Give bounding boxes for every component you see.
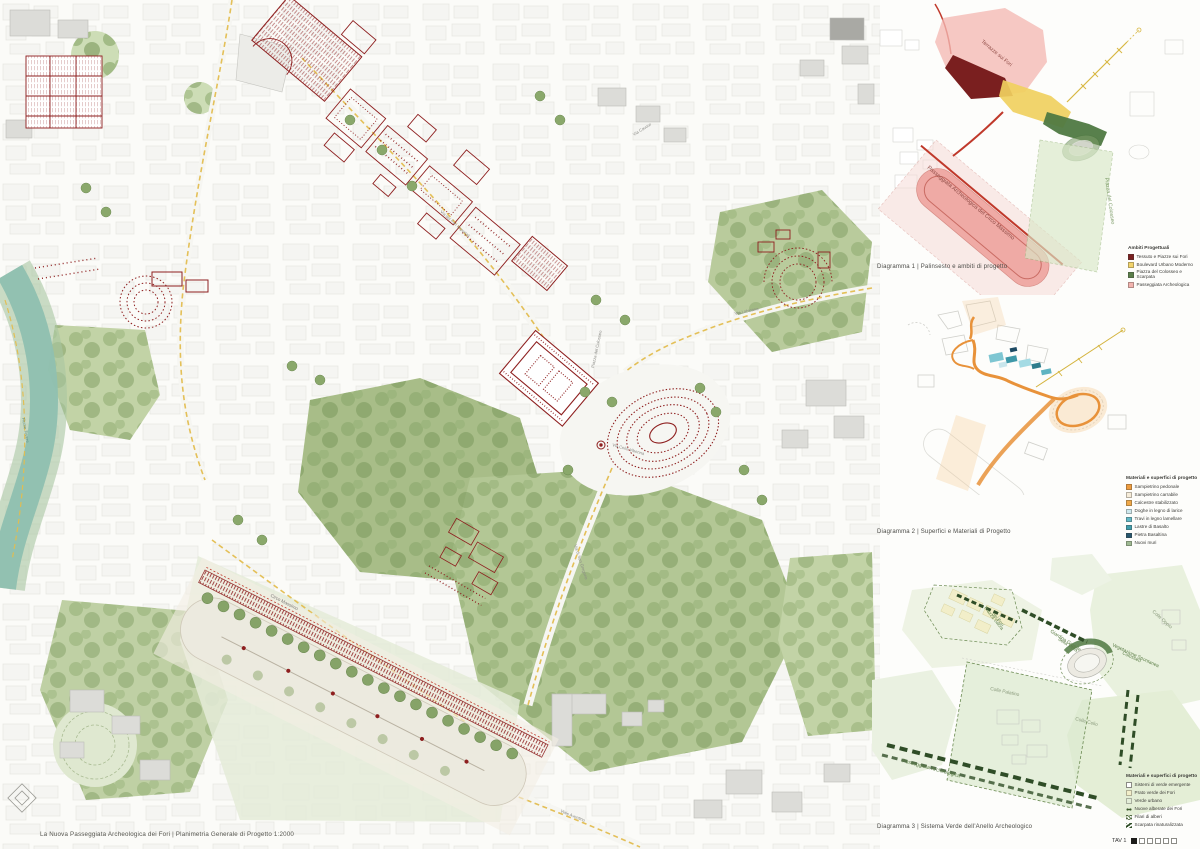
diagram1-legend: Ambiti Progettuali Tessuto e Piazze sui …: [1128, 247, 1198, 290]
board-title-caption: La Nuova Passeggiata Archeologica dei Fo…: [40, 831, 294, 838]
legend-swatch: [1126, 509, 1132, 515]
legend-swatch: [1126, 541, 1132, 547]
dashed-swatch-icon: [1126, 782, 1132, 788]
legend-label: Sistemi di verde emergente: [1135, 783, 1191, 788]
legend-label: Calcestre stabilizzato: [1135, 501, 1178, 506]
sheet-square: [1147, 838, 1153, 844]
legend-label: Nuove alberate dei Fori: [1135, 807, 1183, 812]
legend-label: Nuovi muri: [1135, 541, 1157, 546]
legend-item: Piazza del Colosseo e Scarpata: [1128, 270, 1198, 279]
legend-swatch: [1128, 254, 1134, 260]
diagram1-red-route: [953, 112, 1003, 156]
presentation-board: Circo Massimo: [0, 0, 1200, 849]
masterplan-map: Circo Massimo: [0, 0, 880, 849]
legend-label: Passeggiata Archeologica: [1137, 283, 1190, 288]
legend-item: Pietra Basaltina: [1126, 533, 1198, 539]
legend-swatch: [1128, 262, 1134, 268]
sheet-square: [1171, 838, 1177, 844]
legend-item: Verde urbano: [1126, 798, 1198, 804]
legend-label: Doghe in legno di larice: [1135, 509, 1183, 514]
diagram3-caption: Diagramma 3 | Sistema Verde dell'Anello …: [877, 824, 1032, 830]
legend-swatch: [1128, 272, 1134, 278]
legend-item: Doghe in legno di larice: [1126, 509, 1198, 515]
legend-swatch: [1126, 798, 1132, 804]
sheet-label: TAV 1: [1112, 838, 1126, 844]
largo-argentina-plan: [26, 56, 102, 128]
diagram2-caption: Diagramma 2 | Superfici e Materiali di P…: [877, 529, 1011, 535]
legend-swatch: [1126, 517, 1132, 523]
sheet-indicator: TAV 1: [1112, 838, 1177, 844]
diagram3-legend: Materiali e superfici di progetto Sistem…: [1126, 775, 1198, 831]
legend-item: Nuovi muri: [1126, 541, 1198, 547]
legend-swatch: [1126, 500, 1132, 506]
legend-label: Boulevard Urbano Moderno: [1137, 263, 1193, 268]
sheet-square: [1155, 838, 1161, 844]
sheet-square: [1139, 838, 1145, 844]
legend-swatch: [1126, 492, 1132, 498]
legend-item: Sampietrino pedonale: [1126, 484, 1198, 490]
legend-item: Boulevard Urbano Moderno: [1128, 262, 1198, 268]
legend-swatch: [1126, 533, 1132, 539]
diagram1-zone-piazza: [1025, 140, 1113, 272]
diagram2-axis: [1036, 328, 1125, 387]
sheet-square: [1163, 838, 1169, 844]
sheet-square: [1131, 838, 1137, 844]
legend-item: Calcestre stabilizzato: [1126, 500, 1198, 506]
legend-label: Pietra Basaltina: [1135, 533, 1167, 538]
legend-label: Sampietrino carrabile: [1135, 493, 1178, 498]
legend-label: Travi in legno lamellare: [1135, 517, 1182, 522]
legend-item: Travi in legno lamellare: [1126, 517, 1198, 523]
legend-label: Scarpata rinaturalizzata: [1135, 823, 1183, 828]
legend-item: Passeggiata Archeologica: [1128, 282, 1198, 288]
legend2-title: Materiali e superfici di progetto: [1126, 477, 1198, 482]
legend-label: Prato verde dei Fori: [1135, 791, 1175, 796]
leaves-swatch-icon: [1126, 823, 1132, 829]
diagram2-legend: Materiali e superfici di progetto Sampie…: [1126, 477, 1198, 549]
diagram1-caption: Diagramma 1 | Palinsesto e ambiti di pro…: [877, 264, 1007, 270]
legend-item: Sistemi di verde emergente: [1126, 782, 1198, 788]
diagram2-art: [878, 295, 1140, 495]
legend-item: Prato verde dei Fori: [1126, 790, 1198, 796]
legend-label: Piazza del Colosseo e Scarpata: [1137, 270, 1199, 279]
legend-item: Tessuto e Piazze sui Fori: [1128, 254, 1198, 260]
legend-swatch: [1126, 525, 1132, 531]
legend3-title: Materiali e superfici di progetto: [1126, 775, 1198, 780]
legend-swatch: [1126, 790, 1132, 796]
hatch-swatch-icon: [1126, 815, 1132, 821]
legend-swatch: [1128, 282, 1134, 288]
legend-item: Nuove alberate dei Fori: [1126, 807, 1198, 813]
legend-label: Lastre di Basalto: [1135, 525, 1169, 530]
legend1-title: Ambiti Progettuali: [1128, 247, 1198, 252]
diagram1-boulevard-axis: [1067, 28, 1141, 102]
legend-label: Sampietrino pedonale: [1135, 485, 1180, 490]
legend-item: Sampietrino carrabile: [1126, 492, 1198, 498]
legend-item: Filari di alberi: [1126, 815, 1198, 821]
legend-swatch: [1126, 484, 1132, 490]
legend-item: Scarpata rinaturalizzata: [1126, 823, 1198, 829]
legend-item: Lastre di Basalto: [1126, 525, 1198, 531]
legend-label: Verde urbano: [1135, 799, 1163, 804]
dots-swatch-icon: [1126, 807, 1132, 813]
legend-label: Filari di alberi: [1135, 815, 1162, 820]
legend-label: Tessuto e Piazze sui Fori: [1137, 255, 1188, 260]
